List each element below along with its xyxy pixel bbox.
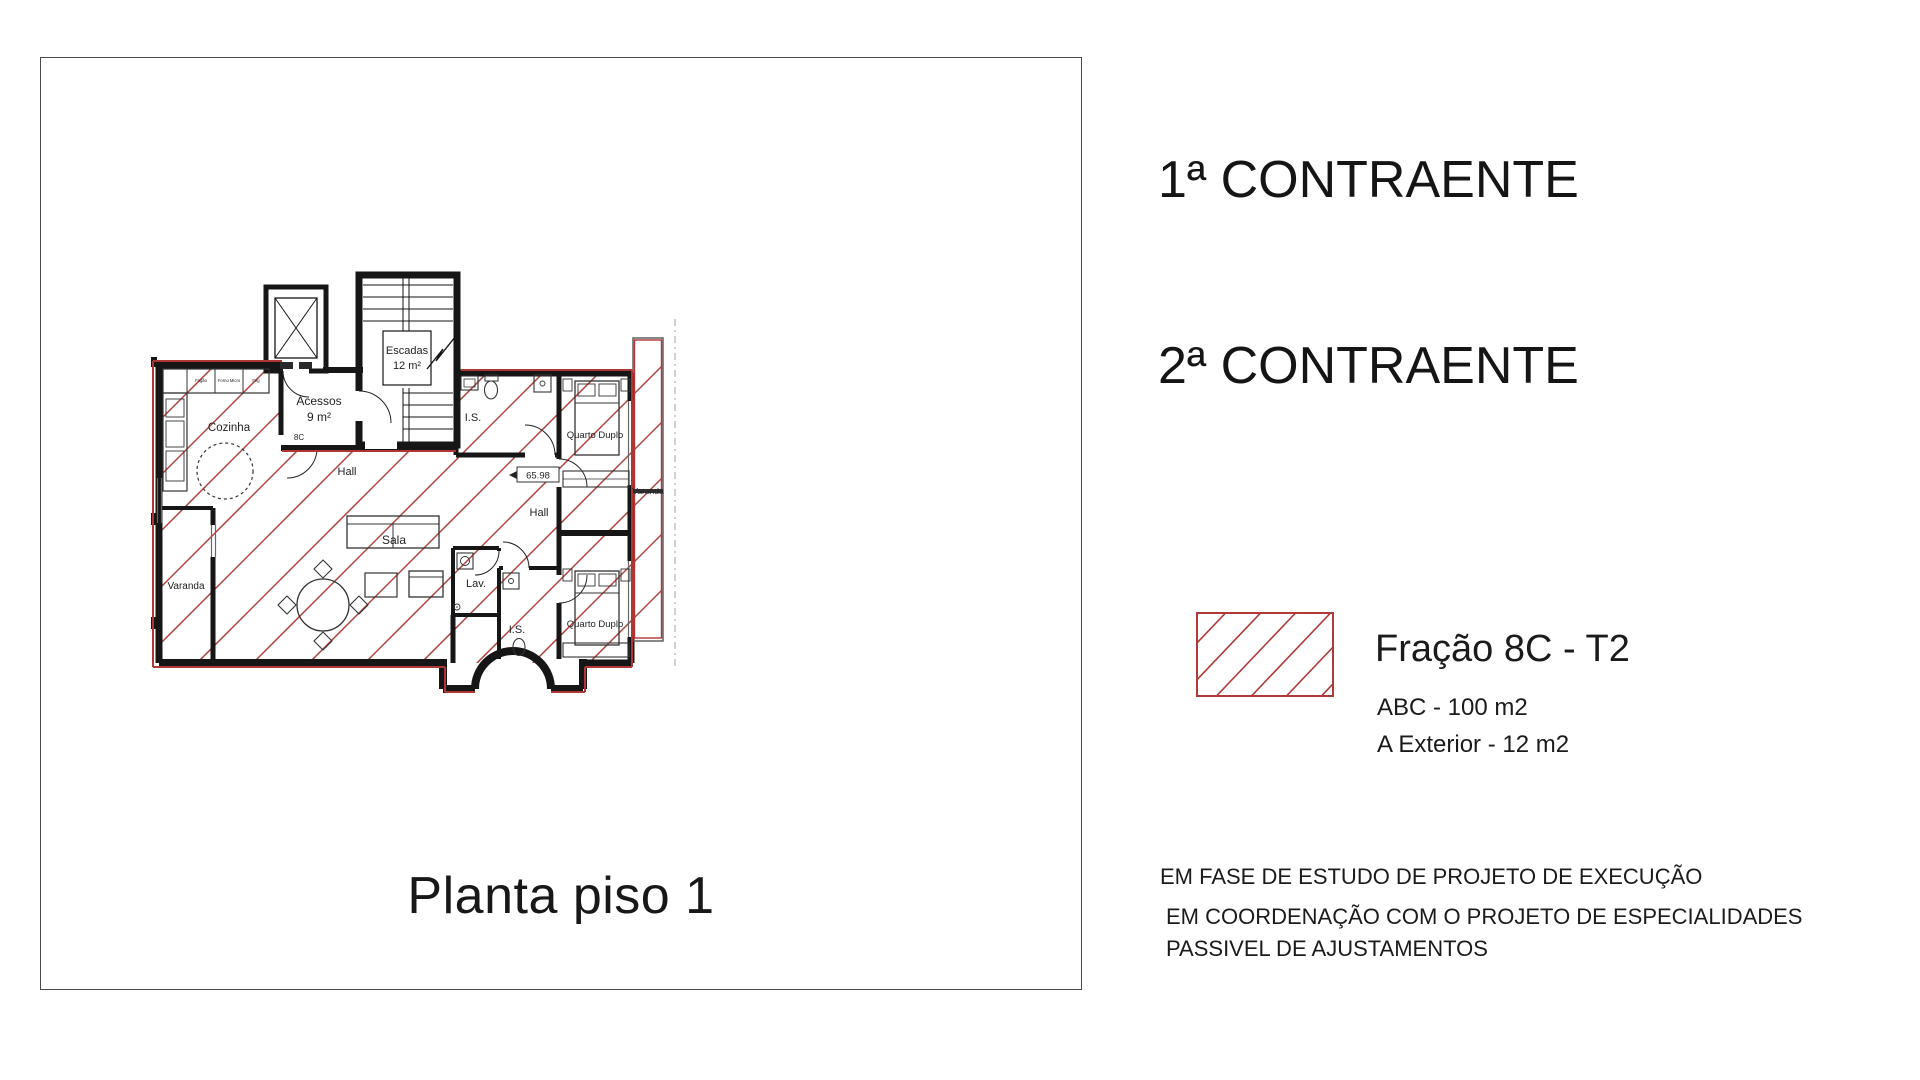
legend-hatch-swatch xyxy=(1196,612,1334,697)
room-labels: Escadas 12 m² Acessos 9 m² 8C Cozinha Ha… xyxy=(167,345,664,636)
label-lav: Lav. xyxy=(466,578,486,590)
label-hall2: Hall xyxy=(530,507,549,519)
walls xyxy=(151,357,631,689)
coffee-table xyxy=(365,573,397,597)
plan-title: Planta piso 1 xyxy=(41,866,1081,926)
label-quarto-top: Quarto Duplo xyxy=(567,430,624,441)
legend-area-abc: ABC - 100 m2 xyxy=(1377,694,1528,722)
label-varanda-right: Varanda xyxy=(632,486,664,496)
label-appliance-1: Fogão xyxy=(195,378,208,383)
note-line-3: PASSIVEL DE AJUSTAMENTOS xyxy=(1166,936,1803,962)
label-acessos-area: 9 m² xyxy=(307,410,331,424)
second-party-heading: 2ª CONTRAENTE xyxy=(1158,336,1579,396)
elevator xyxy=(266,287,326,371)
label-sala: Sala xyxy=(382,533,406,547)
kitchen-table xyxy=(197,443,253,499)
kitchen-furniture xyxy=(163,369,269,499)
label-is-top: I.S. xyxy=(465,412,482,424)
label-unit-door: 8C xyxy=(294,433,304,442)
note-line-2: EM COORDENAÇÃO COM O PROJETO DE ESPECIAL… xyxy=(1166,904,1803,930)
label-escadas-area: 12 m² xyxy=(393,360,421,372)
label-hall1: Hall xyxy=(338,466,357,478)
page: { "title": "Planta piso 1", "parties": {… xyxy=(0,0,1920,1080)
label-appliance-3: Frig xyxy=(252,378,260,383)
label-is-bottom: I.S. xyxy=(509,624,526,636)
dining-table xyxy=(297,579,349,631)
label-cozinha: Cozinha xyxy=(208,422,251,434)
floor-plan: 65.98 Escadas 12 m² Acessos 9 m² 8C Cozi… xyxy=(151,223,981,693)
bedroom-bottom-furniture xyxy=(563,569,630,657)
legend-fraction-label: Fração 8C - T2 xyxy=(1375,628,1630,671)
label-quarto-bottom: Quarto Duplo xyxy=(567,619,624,630)
status-notes: EM FASE DE ESTUDO DE PROJETO DE EXECUÇÃO… xyxy=(1160,864,1803,962)
level-mark-value: 65.98 xyxy=(526,471,550,482)
drawing-sheet-border: 65.98 Escadas 12 m² Acessos 9 m² 8C Cozi… xyxy=(40,57,1082,990)
label-escadas: Escadas xyxy=(386,345,429,357)
first-party-heading: 1ª CONTRAENTE xyxy=(1158,150,1579,210)
label-appliance-2: Forno Micro xyxy=(218,378,241,383)
note-line-1: EM FASE DE ESTUDO DE PROJETO DE EXECUÇÃO xyxy=(1160,864,1803,890)
label-acessos: Acessos xyxy=(296,394,341,408)
level-mark: 65.98 xyxy=(509,467,559,482)
sala-furniture xyxy=(278,516,443,650)
legend-area-exterior: A Exterior - 12 m2 xyxy=(1377,731,1569,759)
label-varanda-left: Varanda xyxy=(167,581,205,592)
